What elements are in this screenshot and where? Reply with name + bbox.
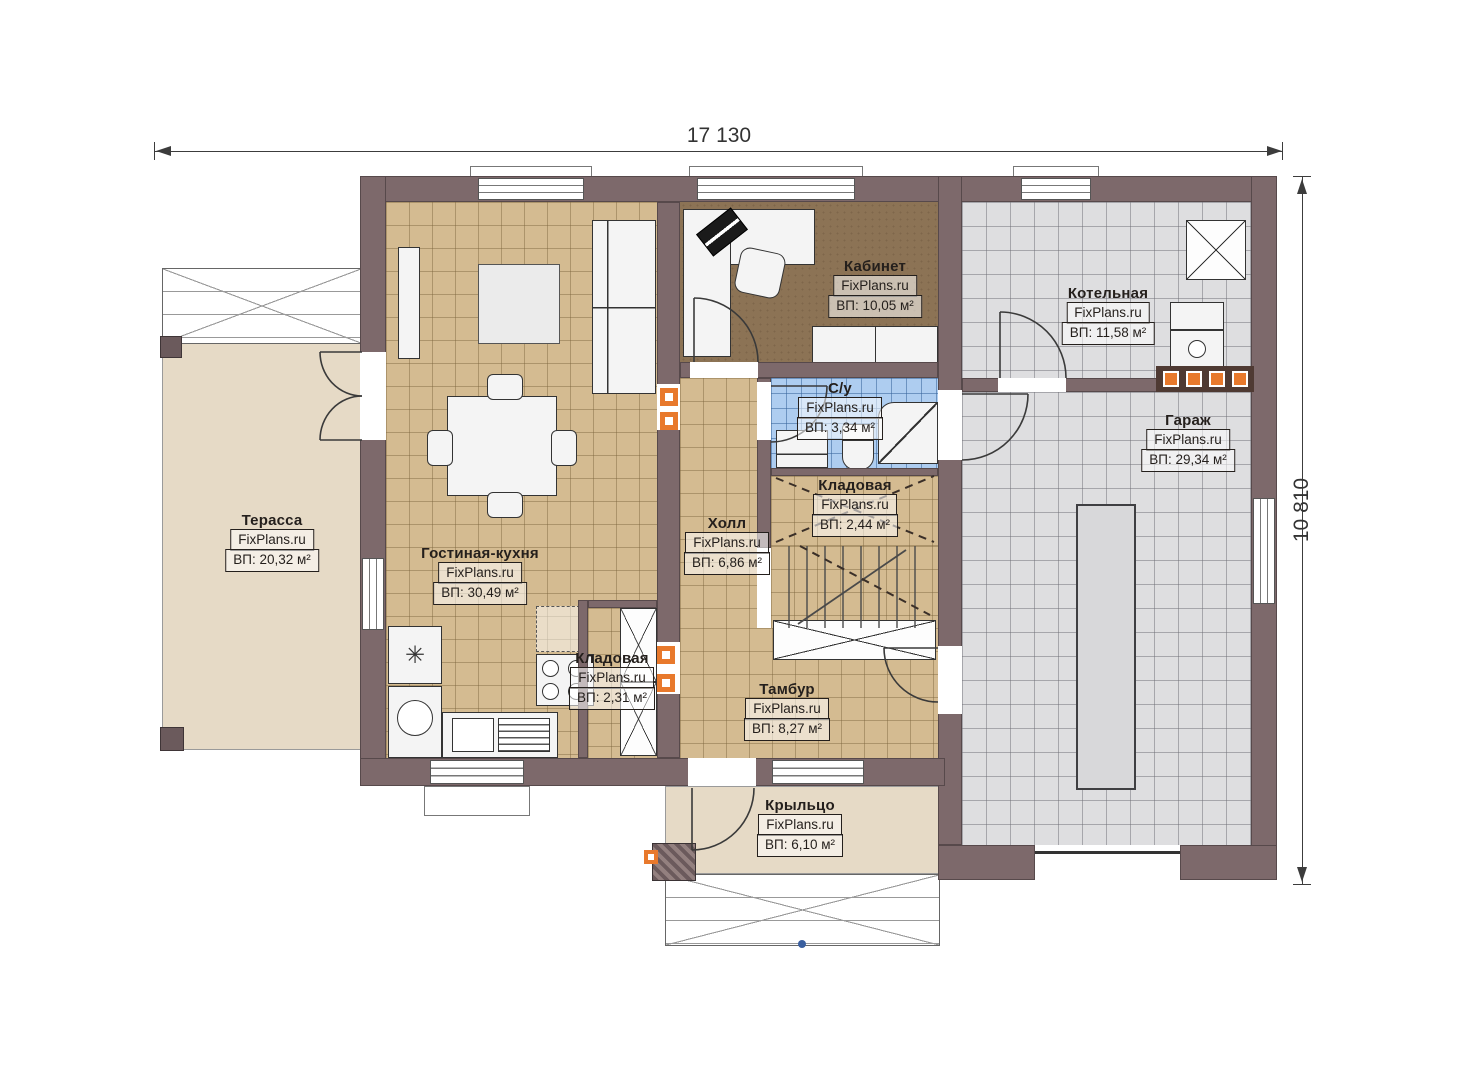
bathroom-door-opening (757, 382, 771, 440)
dimension-tick (1293, 176, 1311, 177)
shower (878, 402, 938, 464)
porch-pillar (652, 843, 696, 881)
living-window-top (478, 178, 584, 200)
garage-gate-line (1035, 851, 1180, 854)
room-name: Терасса (242, 512, 303, 529)
rug (478, 264, 560, 344)
radiator-cell (1209, 371, 1225, 387)
porch-steps (665, 874, 940, 946)
room-area: ВП: 3,34 м² (797, 417, 883, 439)
room-name: Котельная (1068, 285, 1148, 302)
boiler-garage-door-opening (998, 378, 1066, 392)
room-name: С/у (828, 380, 852, 397)
window-bay (424, 786, 530, 816)
room-label-boiler: Котельная FixPlans.ru ВП: 11,58 м² (1062, 285, 1155, 345)
door-marker (657, 674, 675, 692)
burner (542, 660, 559, 677)
room-label-storage-under-stairs: Кладовая FixPlans.ru ВП: 2,44 м² (812, 477, 898, 537)
dimension-tick (154, 142, 155, 160)
terrace-door-opening (360, 352, 386, 440)
room-name: Крыльцо (765, 797, 835, 814)
room-name: Гараж (1165, 412, 1211, 429)
room-name: Тамбур (759, 681, 815, 698)
watermark: FixPlans.ru (745, 698, 829, 720)
wall-pantry-top (588, 600, 657, 608)
room-name: Кладовая (575, 650, 648, 667)
office-door-opening (690, 362, 758, 378)
dining-table (447, 396, 557, 496)
floor-plan: 17 130 10 810 (0, 0, 1473, 1080)
sofa (592, 220, 656, 394)
door-marker (660, 388, 678, 406)
room-label-office: Кабинет FixPlans.ru ВП: 10,05 м² (828, 258, 922, 318)
room-area: ВП: 6,10 м² (757, 834, 843, 856)
burner (542, 683, 559, 700)
door-marker (657, 646, 675, 664)
porch-window (772, 760, 864, 784)
oven-panel (498, 718, 550, 752)
watermark: FixPlans.ru (813, 494, 897, 516)
dimension-line-top (155, 151, 1283, 152)
room-label-garage: Гараж FixPlans.ru ВП: 29,34 м² (1141, 412, 1235, 472)
room-label-terrace: Терасса FixPlans.ru ВП: 20,32 м² (225, 512, 319, 572)
radiator-cell (1186, 371, 1202, 387)
room-area: ВП: 29,34 м² (1141, 449, 1235, 471)
inspection-pit (1076, 504, 1136, 790)
round-sink (397, 700, 433, 736)
wall-garage-bottom-right (1180, 845, 1277, 880)
watermark: FixPlans.ru (685, 532, 769, 554)
room-area: ВП: 30,49 м² (433, 582, 527, 604)
watermark: FixPlans.ru (798, 397, 882, 419)
door-marker (644, 850, 658, 864)
watermark: FixPlans.ru (1146, 429, 1230, 451)
room-area: ВП: 8,27 м² (744, 718, 830, 740)
watermark: FixPlans.ru (438, 562, 522, 584)
chair (487, 374, 523, 400)
fridge-snowflake-icon: ✳ (389, 627, 441, 683)
room-label-hall: Холл FixPlans.ru ВП: 6,86 м² (684, 515, 770, 575)
radiator (1156, 366, 1254, 392)
room-area: ВП: 2,44 м² (812, 514, 898, 536)
radiator-cell (1232, 371, 1248, 387)
vestibule-porch-door-opening (688, 758, 756, 786)
dimension-tick (1293, 884, 1311, 885)
boiler-unit (1170, 302, 1224, 372)
room-label-bathroom: С/у FixPlans.ru ВП: 3,34 м² (797, 380, 883, 440)
dimension-arrow-left (156, 146, 171, 156)
office-chair (733, 246, 788, 301)
room-name: Кабинет (844, 258, 906, 275)
wall-bathroom-storage (771, 468, 938, 476)
hall-floor (680, 378, 757, 628)
wall-left (360, 176, 386, 786)
office-window-top (697, 178, 855, 200)
fridge: ✳ (388, 626, 442, 684)
dimension-arrow-right (1267, 146, 1282, 156)
room-area: ВП: 2,31 м² (569, 687, 655, 709)
dimension-arrow-down (1297, 867, 1307, 882)
wall-middle-vertical (938, 176, 962, 845)
room-name: Кладовая (818, 477, 891, 494)
room-area: ВП: 6,86 м² (684, 552, 770, 574)
radiator-cell (1163, 371, 1179, 387)
room-label-pantry: Кладовая FixPlans.ru ВП: 2,31 м² (569, 650, 655, 710)
stairs-floor (771, 546, 938, 628)
chair (427, 430, 453, 466)
tv-stand (398, 247, 420, 359)
room-label-porch: Крыльцо FixPlans.ru ВП: 6,10 м² (757, 797, 843, 857)
kitchen-window-bottom (430, 760, 524, 784)
dimension-arrow-up (1297, 179, 1307, 194)
watermark: FixPlans.ru (833, 275, 917, 297)
chair (551, 430, 577, 466)
living-window-left (362, 558, 384, 630)
terrace-pillar (160, 727, 184, 751)
chair (487, 492, 523, 518)
room-area: ВП: 11,58 м² (1062, 322, 1155, 344)
watermark: FixPlans.ru (758, 814, 842, 836)
oven (452, 718, 494, 752)
wall-garage-bottom-left (938, 845, 1035, 880)
watermark: FixPlans.ru (230, 529, 314, 551)
hall-garage-door-opening (938, 390, 962, 460)
boiler-window-top (1021, 178, 1091, 200)
door-marker (660, 412, 678, 430)
terrace-steps (162, 268, 362, 344)
watermark: FixPlans.ru (570, 667, 654, 689)
dimension-width-label: 17 130 (640, 124, 798, 148)
room-label-living-kitchen: Гостиная-кухня FixPlans.ru ВП: 30,49 м² (421, 545, 539, 605)
dimension-height-label: 10 810 (1290, 470, 1314, 550)
terrace-pillar (160, 336, 182, 358)
room-label-vestibule: Тамбур FixPlans.ru ВП: 8,27 м² (744, 681, 830, 741)
tall-cabinet (536, 606, 580, 652)
room-area: ВП: 20,32 м² (225, 549, 319, 571)
room-name: Холл (708, 515, 746, 532)
dimension-tick (1282, 142, 1283, 160)
closet-under-landing (773, 620, 936, 660)
watermark: FixPlans.ru (1066, 302, 1150, 324)
boiler-port (1188, 340, 1206, 358)
chimney-shaft (1186, 220, 1246, 280)
vestibule-garage-door-opening (938, 646, 962, 714)
room-area: ВП: 10,05 м² (828, 295, 922, 317)
garage-window-right (1253, 498, 1275, 604)
room-name: Гостиная-кухня (421, 545, 539, 562)
